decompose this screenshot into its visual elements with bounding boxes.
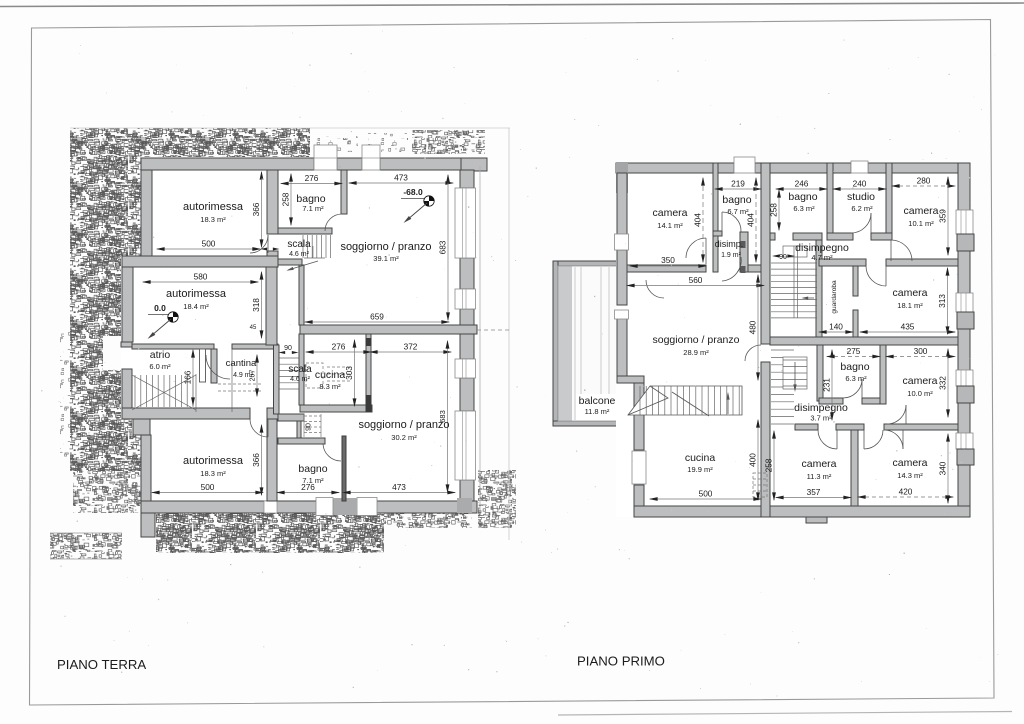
- svg-text:3.7 m²: 3.7 m²: [810, 414, 832, 423]
- svg-text:6.3 m²: 6.3 m²: [845, 374, 867, 383]
- svg-text:cucina: cucina: [315, 369, 346, 381]
- svg-text:340: 340: [938, 461, 948, 475]
- svg-text:480: 480: [748, 320, 758, 334]
- svg-text:659: 659: [370, 312, 384, 322]
- svg-text:366: 366: [251, 202, 261, 216]
- svg-text:4.9 m²: 4.9 m²: [233, 372, 254, 379]
- svg-text:bagno: bagno: [298, 463, 327, 475]
- svg-text:6.2 m²: 6.2 m²: [851, 204, 873, 213]
- svg-text:disimpegno: disimpegno: [794, 402, 848, 414]
- svg-text:PIANO TERRA: PIANO TERRA: [57, 657, 146, 672]
- svg-text:30.2 m²: 30.2 m²: [391, 433, 417, 442]
- svg-text:11.8 m²: 11.8 m²: [585, 407, 610, 416]
- svg-text:332: 332: [938, 376, 948, 390]
- svg-text:guardaroba: guardaroba: [831, 280, 838, 314]
- svg-text:276: 276: [332, 342, 346, 352]
- svg-text:19.9 m²: 19.9 m²: [687, 465, 713, 474]
- svg-text:90: 90: [779, 254, 787, 261]
- svg-text:1.9 m²: 1.9 m²: [721, 252, 742, 259]
- svg-text:autorimessa: autorimessa: [183, 201, 244, 213]
- svg-text:404: 404: [693, 213, 703, 227]
- svg-text:14.3 m²: 14.3 m²: [897, 471, 923, 480]
- svg-text:560: 560: [689, 275, 703, 285]
- svg-text:359: 359: [938, 209, 948, 223]
- svg-text:280: 280: [917, 176, 931, 186]
- svg-text:420: 420: [899, 487, 913, 497]
- svg-text:473: 473: [394, 173, 408, 183]
- svg-text:4.6 m²: 4.6 m²: [290, 376, 311, 383]
- svg-text:4.7 m²: 4.7 m²: [811, 253, 833, 262]
- svg-text:357: 357: [807, 487, 821, 497]
- svg-text:11.3 m²: 11.3 m²: [807, 472, 832, 481]
- svg-text:bagno: bagno: [840, 361, 869, 373]
- svg-text:435: 435: [901, 322, 915, 332]
- svg-text:cucina: cucina: [685, 452, 716, 464]
- svg-text:bagno: bagno: [722, 194, 751, 206]
- svg-text:166: 166: [183, 370, 193, 384]
- svg-text:0.0: 0.0: [154, 303, 166, 313]
- svg-text:10.0 m²: 10.0 m²: [907, 389, 933, 398]
- svg-text:18.4 m²: 18.4 m²: [183, 302, 209, 311]
- svg-text:303: 303: [344, 366, 354, 380]
- svg-text:683: 683: [438, 240, 448, 254]
- svg-text:18.3 m²: 18.3 m²: [200, 215, 226, 224]
- svg-text:4.6 m²: 4.6 m²: [289, 251, 310, 258]
- svg-text:balcone: balcone: [579, 395, 616, 407]
- svg-text:140: 140: [829, 322, 843, 332]
- svg-text:240: 240: [853, 179, 867, 189]
- svg-text:90: 90: [306, 423, 313, 431]
- svg-text:8.3 m²: 8.3 m²: [319, 382, 341, 391]
- svg-text:scala: scala: [287, 239, 311, 250]
- svg-text:90: 90: [284, 345, 292, 352]
- svg-text:28.9 m²: 28.9 m²: [683, 348, 709, 357]
- svg-text:camera: camera: [892, 457, 927, 469]
- svg-text:6.3 m²: 6.3 m²: [793, 204, 815, 213]
- svg-text:camera: camera: [903, 205, 938, 217]
- svg-text:bagno: bagno: [788, 191, 817, 203]
- svg-text:372: 372: [404, 342, 418, 352]
- svg-text:258: 258: [769, 203, 779, 217]
- svg-text:PIANO PRIMO: PIANO PRIMO: [577, 654, 665, 669]
- svg-text:-68.0: -68.0: [403, 187, 423, 197]
- svg-text:300: 300: [914, 346, 928, 356]
- svg-text:camera: camera: [902, 375, 937, 387]
- svg-text:14.1 m²: 14.1 m²: [657, 221, 683, 230]
- svg-text:219: 219: [731, 179, 745, 189]
- svg-text:366: 366: [251, 453, 261, 467]
- svg-text:318: 318: [251, 298, 261, 312]
- svg-text:soggiorno / pranzo: soggiorno / pranzo: [653, 334, 740, 346]
- svg-text:7.1 m²: 7.1 m²: [302, 204, 324, 213]
- svg-text:autorimessa: autorimessa: [166, 288, 227, 300]
- svg-text:246: 246: [795, 179, 809, 189]
- svg-text:studio: studio: [847, 191, 875, 203]
- svg-text:400: 400: [748, 453, 758, 467]
- svg-text:disimp.: disimp.: [715, 239, 744, 249]
- svg-text:276: 276: [305, 173, 319, 183]
- svg-text:scala: scala: [288, 364, 312, 375]
- svg-text:soggiorno / pranzo: soggiorno / pranzo: [340, 241, 431, 253]
- svg-text:7.1 m²: 7.1 m²: [302, 476, 324, 485]
- svg-text:258: 258: [764, 458, 774, 472]
- svg-text:atrio: atrio: [150, 349, 171, 361]
- svg-text:258: 258: [281, 192, 291, 206]
- svg-text:500: 500: [202, 239, 216, 249]
- svg-text:camera: camera: [801, 458, 836, 470]
- svg-text:500: 500: [699, 489, 713, 499]
- svg-text:231: 231: [822, 378, 832, 392]
- svg-text:6.7 m²: 6.7 m²: [727, 207, 749, 216]
- svg-text:580: 580: [194, 272, 208, 282]
- svg-text:45: 45: [250, 325, 257, 331]
- svg-text:350: 350: [661, 255, 675, 265]
- svg-text:18.1 m²: 18.1 m²: [897, 301, 923, 310]
- svg-text:275: 275: [847, 346, 861, 356]
- svg-text:6.0 m²: 6.0 m²: [149, 362, 171, 371]
- svg-text:cantina: cantina: [226, 358, 257, 369]
- svg-text:473: 473: [392, 482, 406, 492]
- svg-text:10.1 m²: 10.1 m²: [908, 219, 934, 228]
- svg-text:500: 500: [201, 482, 215, 492]
- svg-text:313: 313: [937, 294, 947, 308]
- svg-text:soggiorno / pranzo: soggiorno / pranzo: [358, 419, 449, 431]
- svg-text:autorimessa: autorimessa: [183, 455, 244, 467]
- svg-text:camera: camera: [892, 287, 927, 299]
- svg-text:camera: camera: [652, 207, 687, 219]
- svg-text:18.3 m²: 18.3 m²: [200, 469, 226, 478]
- svg-text:39.1 m²: 39.1 m²: [373, 254, 399, 263]
